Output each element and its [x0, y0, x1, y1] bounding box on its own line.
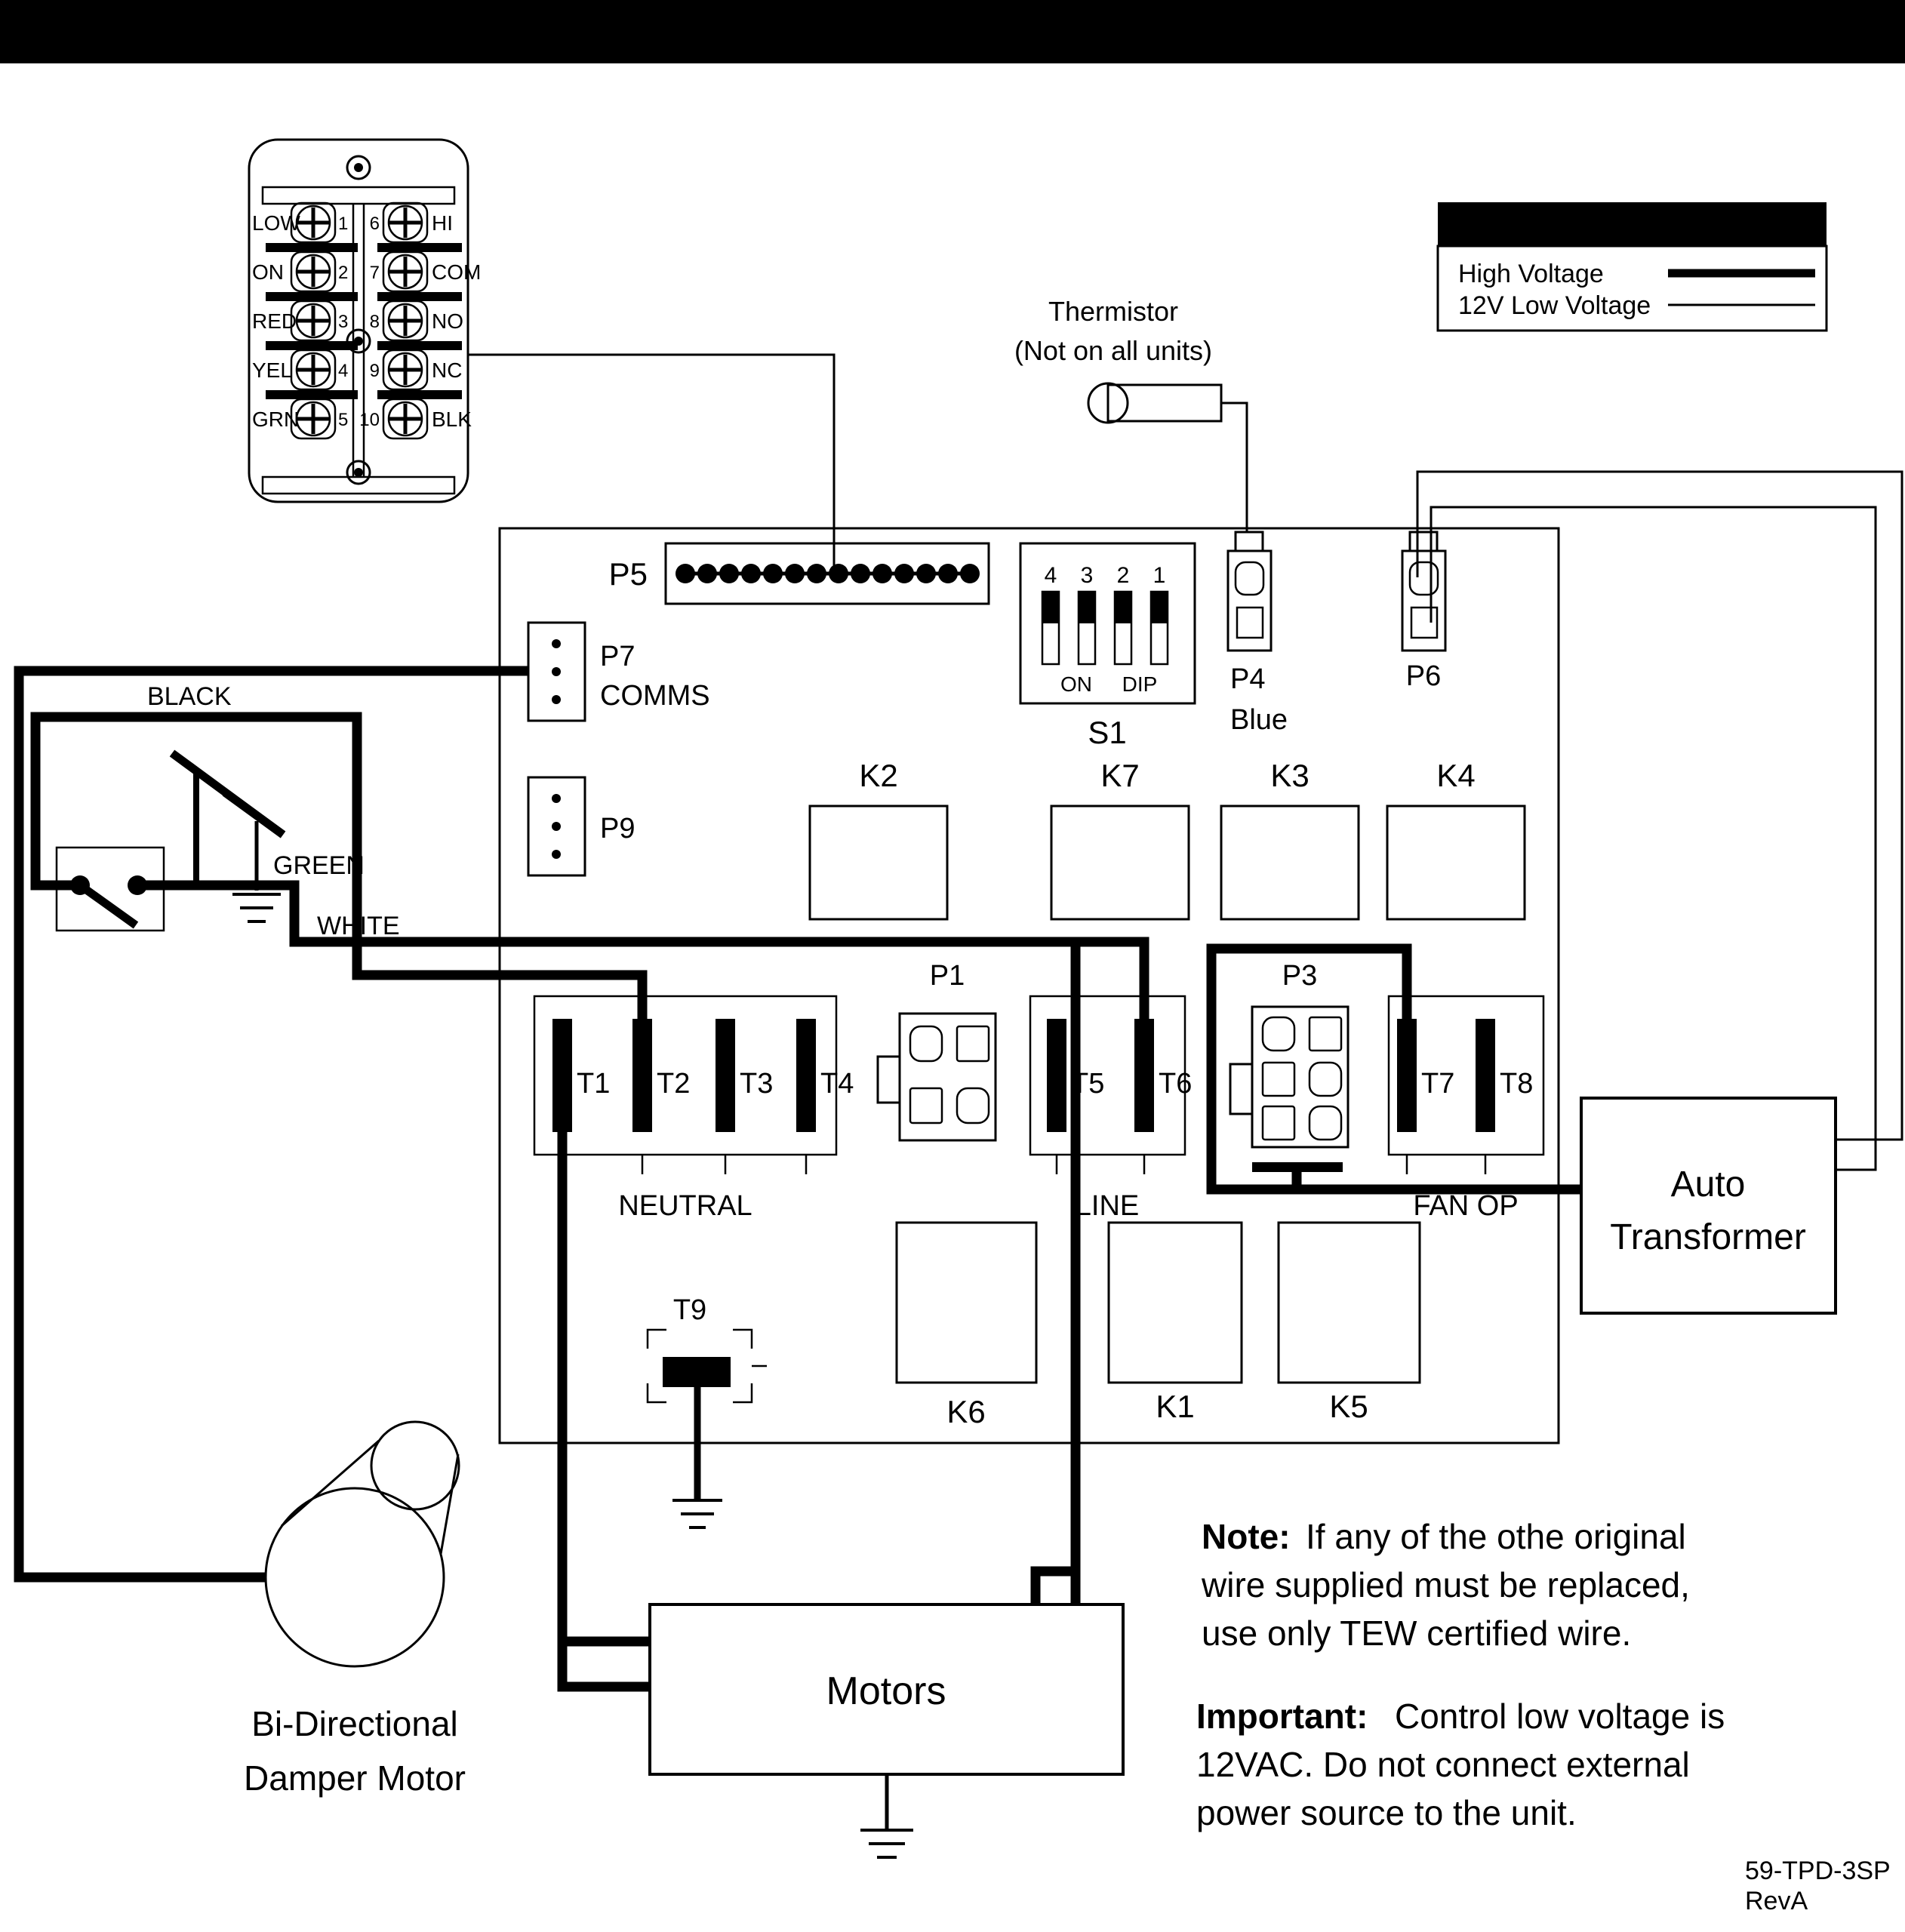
thermistor-wire — [1221, 403, 1247, 532]
wall-control-to-p5-wire — [468, 355, 834, 574]
p6-label: P6 — [1406, 660, 1441, 692]
doc-code-rev: RevA — [1745, 1887, 1808, 1915]
important-bold: Important: — [1196, 1697, 1368, 1736]
svg-text:GRN: GRN — [252, 408, 299, 431]
svg-text:COM: COM — [432, 260, 481, 284]
dip-num-3: 3 — [1081, 563, 1094, 588]
p7-label: P7 — [600, 641, 635, 672]
p5-label: P5 — [609, 556, 648, 592]
important-text: Important: Control low voltage is 12VAC.… — [1196, 1697, 1725, 1832]
doc-code: 59-TPD-3SP RevA — [1745, 1857, 1891, 1915]
control-board-outline — [500, 528, 1559, 1443]
relay-k2: K2 — [810, 758, 947, 919]
t2-label: T2 — [657, 1068, 690, 1100]
svg-text:Control low voltage is: Control low voltage is — [1395, 1697, 1725, 1736]
caution-banner: CAUTION: ELECTRICAL CONTROL PANEL, SERVI… — [0, 0, 1905, 63]
svg-text:RED: RED — [252, 309, 297, 333]
relay-k1: K1 — [1109, 1223, 1242, 1424]
legend-high-voltage-label: High Voltage — [1458, 260, 1604, 288]
svg-text:K6: K6 — [946, 1394, 985, 1429]
svg-text:3: 3 — [338, 312, 348, 332]
t4-label: T4 — [820, 1068, 854, 1100]
legend-low-voltage-label: 12V Low Voltage — [1458, 291, 1651, 320]
svg-text:NC: NC — [432, 358, 462, 382]
caution-banner-bold: CAUTION: — [14, 5, 234, 57]
connector-p5: P5 — [609, 543, 989, 604]
neutral-terminal-strip: T1 T2 T3 T4 NEUTRAL — [534, 996, 854, 1222]
motors-box: Motors — [650, 1604, 1123, 1857]
legend-title: Legend — [1581, 208, 1682, 241]
svg-text:HI: HI — [432, 211, 453, 235]
svg-text:LOW: LOW — [252, 211, 300, 235]
connector-p9: P9 — [528, 777, 635, 875]
svg-text:BLK: BLK — [432, 408, 472, 431]
mounting-hole-top — [347, 156, 370, 179]
svg-text:2: 2 — [338, 263, 348, 283]
p3-label: P3 — [1282, 960, 1317, 992]
t1-label: T1 — [577, 1068, 610, 1100]
svg-text:6: 6 — [370, 214, 380, 234]
connector-p4: P4 Blue — [1228, 532, 1288, 736]
dip-num-1: 1 — [1153, 563, 1166, 588]
fanop-label: FAN OP — [1413, 1190, 1518, 1222]
svg-text:K4: K4 — [1436, 758, 1475, 793]
svg-text:ON: ON — [252, 260, 284, 284]
wire-motors-jog — [1036, 1571, 1076, 1604]
t6-label: T6 — [1159, 1068, 1192, 1100]
svg-text:wire supplied must be replaced: wire supplied must be replaced, — [1201, 1565, 1690, 1604]
auto-transformer-label-2: Transformer — [1610, 1217, 1806, 1257]
svg-text:5: 5 — [338, 410, 348, 430]
svg-text:YEL: YEL — [252, 358, 292, 382]
p4-label: P4 — [1230, 663, 1265, 695]
t5-label: T5 — [1071, 1068, 1104, 1100]
svg-text:10: 10 — [359, 410, 380, 430]
connector-p7: P7 COMMS — [528, 623, 710, 721]
auto-transformer-box: Auto Transformer — [1581, 1098, 1836, 1313]
power-cable-fanout — [172, 753, 283, 921]
thermistor-label-2: (Not on all units) — [1014, 335, 1212, 366]
auto-transformer-label-1: Auto — [1671, 1164, 1746, 1204]
svg-text:4: 4 — [338, 361, 348, 381]
svg-text:1: 1 — [338, 214, 348, 234]
dip-switch-s1: 4 3 2 1 ON DIP S1 — [1020, 543, 1195, 750]
connector-p1: P1 — [878, 960, 996, 1140]
t9-label: T9 — [673, 1294, 706, 1326]
s1-label: S1 — [1088, 715, 1126, 750]
relay-k3: K3 — [1221, 758, 1359, 919]
ground-symbol-t9 — [672, 1500, 722, 1527]
note-text: Note: If any of the othe original wire s… — [1201, 1517, 1690, 1653]
t8-label: T8 — [1500, 1068, 1533, 1100]
damper-motor-label-2: Damper Motor — [244, 1758, 466, 1798]
wire-green-label: GREEN — [273, 851, 365, 880]
dip-num-2: 2 — [1117, 563, 1130, 588]
dip-on-label: ON — [1060, 672, 1092, 696]
svg-text:use only TEW certified wire.: use only TEW certified wire. — [1202, 1614, 1631, 1653]
wiring-diagram: CAUTION: ELECTRICAL CONTROL PANEL, SERVI… — [0, 0, 1905, 1932]
relay-k5: K5 — [1279, 1223, 1420, 1424]
doc-code-number: 59-TPD-3SP — [1745, 1857, 1891, 1885]
damper-motor-label-1: Bi-Directional — [251, 1704, 458, 1743]
svg-text:7: 7 — [370, 263, 380, 283]
line-terminal-strip: T5 T6 LINE — [1030, 996, 1192, 1222]
svg-text:NO: NO — [432, 309, 463, 333]
svg-text:8: 8 — [370, 312, 380, 332]
svg-text:K3: K3 — [1270, 758, 1309, 793]
relay-k4: K4 — [1387, 758, 1525, 919]
motors-label: Motors — [826, 1669, 946, 1713]
connector-p6: P6 — [1402, 532, 1445, 692]
svg-text:K5: K5 — [1329, 1389, 1368, 1424]
p4-color-label: Blue — [1230, 704, 1288, 736]
svg-text:power source to the unit.: power source to the unit. — [1196, 1793, 1577, 1832]
terminal-t9: T9 — [648, 1294, 767, 1527]
wire-white-label: WHITE — [317, 912, 400, 940]
ground-symbol-motors — [860, 1830, 913, 1857]
p1-label: P1 — [930, 960, 965, 992]
dip-switch-levers — [1042, 592, 1168, 664]
terminal-screws — [291, 203, 427, 438]
p6-wire-inner — [1431, 507, 1876, 1170]
legend-box: Legend High Voltage 12V Low Voltage — [1438, 202, 1827, 331]
damper-motor: Bi-Directional Damper Motor — [244, 1422, 466, 1798]
p7-sub-label: COMMS — [600, 680, 710, 712]
thermistor-label-1: Thermistor — [1048, 296, 1178, 327]
t3-label: T3 — [740, 1068, 773, 1100]
note-bold: Note: — [1202, 1517, 1291, 1556]
dip-num-4: 4 — [1045, 563, 1057, 588]
svg-text:If any of the othe original: If any of the othe original — [1306, 1517, 1686, 1556]
svg-text:K2: K2 — [859, 758, 897, 793]
caution-banner-text: ELECTRICAL CONTROL PANEL, SERVICE BY ELE… — [249, 5, 1891, 57]
connector-p3: P3 — [1230, 960, 1348, 1147]
line-label: LINE — [1076, 1190, 1139, 1222]
relay-k7: K7 — [1051, 758, 1189, 919]
wall-control-terminal-block: LOW16HI ON27COM RED38NO YEL49NC GRN510BL… — [249, 140, 481, 502]
wire-black-label: BLACK — [147, 682, 232, 711]
dip-dip-label: DIP — [1122, 672, 1158, 696]
svg-text:9: 9 — [370, 361, 380, 381]
thermistor: Thermistor (Not on all units) — [1014, 296, 1247, 532]
p3-bottom-bar — [1252, 1162, 1343, 1172]
t7-label: T7 — [1421, 1068, 1454, 1100]
svg-text:K7: K7 — [1100, 758, 1139, 793]
wiring-diagram-page: CAUTION: ELECTRICAL CONTROL PANEL, SERVI… — [0, 0, 1905, 1932]
p9-label: P9 — [600, 813, 635, 844]
neutral-label: NEUTRAL — [618, 1190, 752, 1222]
svg-text:12VAC. Do not connect external: 12VAC. Do not connect external — [1196, 1745, 1690, 1784]
mounting-hole-bottom — [347, 461, 370, 484]
svg-text:K1: K1 — [1156, 1389, 1194, 1424]
ground-symbol-green — [232, 894, 281, 921]
wire-motors-stubs — [562, 1641, 650, 1687]
relay-k6: K6 — [897, 1223, 1036, 1429]
